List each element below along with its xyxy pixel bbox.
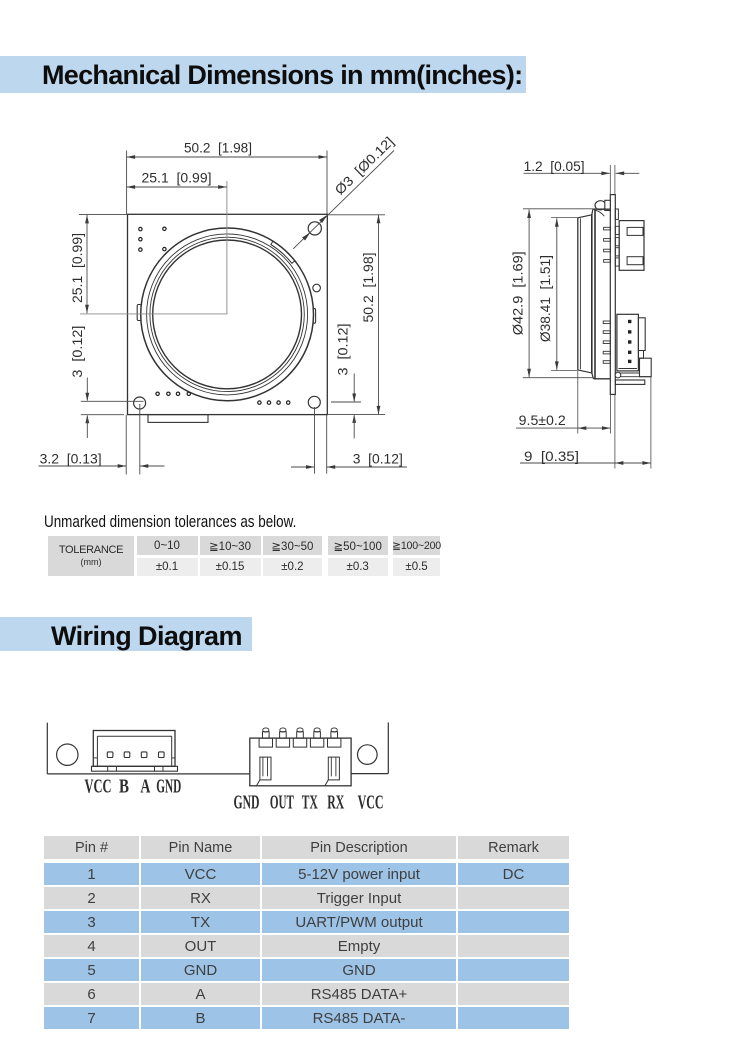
svg-text:TX: TX: [302, 792, 318, 814]
svg-text:3.2 [0.13]: 3.2 [0.13]: [40, 452, 102, 467]
svg-text:Ø42.9 [1.69]: Ø42.9 [1.69]: [511, 251, 526, 335]
svg-text:GND: GND: [234, 792, 260, 814]
svg-text:3 [0.12]: 3 [0.12]: [335, 324, 350, 376]
svg-text:50.2 [1.98]: 50.2 [1.98]: [361, 253, 376, 323]
svg-text:VCC: VCC: [85, 776, 112, 798]
svg-text:Ø3 [Ø0.12]: Ø3 [Ø0.12]: [332, 134, 397, 198]
svg-text:25.1 [0.99]: 25.1 [0.99]: [70, 233, 85, 303]
svg-text:1.2 [0.05]: 1.2 [0.05]: [524, 159, 585, 174]
svg-text:Ø38.41 [1.51]: Ø38.41 [1.51]: [538, 255, 553, 342]
svg-text:A: A: [140, 776, 150, 798]
svg-text:B: B: [119, 776, 129, 798]
svg-text:GND: GND: [156, 776, 181, 798]
svg-text:50.2 [1.98]: 50.2 [1.98]: [184, 141, 252, 156]
svg-text:RX: RX: [327, 792, 344, 814]
svg-text:VCC: VCC: [358, 792, 384, 814]
svg-text:9.5±0.2: 9.5±0.2: [519, 413, 566, 428]
svg-text:25.1 [0.99]: 25.1 [0.99]: [142, 171, 212, 186]
svg-text:3 [0.12]: 3 [0.12]: [353, 451, 403, 466]
svg-text:9 [0.35]: 9 [0.35]: [524, 449, 579, 464]
svg-text:OUT: OUT: [270, 792, 294, 814]
svg-text:3 [0.12]: 3 [0.12]: [70, 326, 85, 378]
